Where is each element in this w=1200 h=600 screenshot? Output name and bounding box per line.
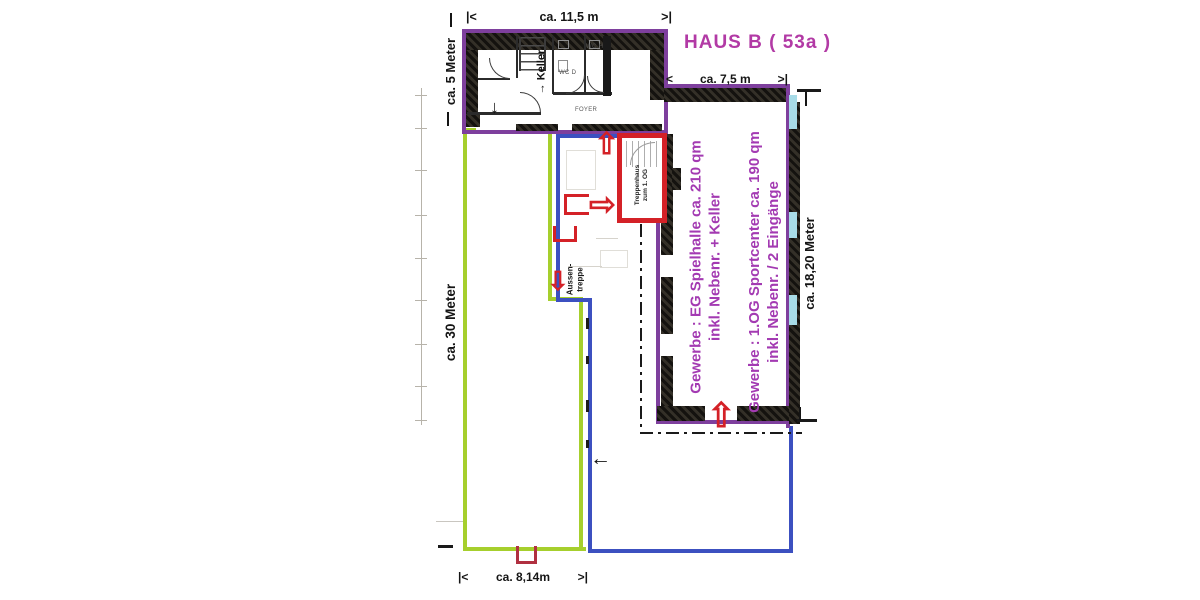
south-entrance-arrow-up-icon: ⇧ — [707, 399, 736, 433]
red-door-bracket — [564, 194, 589, 215]
blue-outline-left-lower — [588, 298, 592, 553]
wall-window-gap — [660, 255, 674, 277]
dimension-top-right-marker: >| — [661, 10, 672, 24]
entrance-arrow-up-icon: ⇧ — [594, 130, 619, 160]
gewerbe-eg-line2: inkl. Nebenr. + Keller — [706, 140, 725, 393]
plan-dash — [586, 440, 589, 448]
dimension-bottom-label: ca. 8,14m — [496, 570, 550, 584]
gewerbe-og-line2: inkl. Nebenr. / 2 Eingänge — [764, 131, 783, 413]
gewerbe-eg-annotation: Gewerbe : EG Spielhalle ca. 210 qm inkl.… — [683, 130, 729, 404]
dimension-tick — [799, 407, 801, 420]
survey-tick — [415, 344, 427, 345]
dimension-wing-right-marker: >| — [778, 72, 788, 86]
keller-label: Keller — [535, 50, 547, 81]
dimension-left-upper-label: ca. 5 Meter — [444, 37, 459, 104]
green-outline-mid-lower — [579, 297, 583, 551]
wall-wing-bottom-a — [657, 406, 705, 421]
wall-wing-top — [664, 88, 786, 102]
dimension-tick — [805, 92, 807, 106]
survey-line — [421, 88, 422, 425]
dimension-left-upper-box: ca. 5 Meter — [436, 28, 466, 114]
page-title: HAUS B ( 53a ) — [684, 32, 831, 54]
gewerbe-og-line1: Gewerbe : 1.OG Sportcenter ca. 190 qm — [745, 131, 764, 413]
wc-d-label: WC D — [559, 70, 576, 76]
treppenhaus-label-line1: Treppenhaus — [634, 165, 642, 205]
dimension-top: |< ca. 11,5 m >| — [466, 10, 672, 24]
keller-direction-arrow-icon: → — [535, 83, 547, 94]
dimension-wing: < ca. 7,5 m >| — [666, 72, 788, 86]
blue-outline-bottom — [588, 549, 793, 553]
survey-tick — [415, 128, 427, 129]
foyer-arrow-down-icon: ↓ — [490, 98, 499, 116]
aussentreppe-label-line2: treppe — [575, 263, 585, 295]
dimension-wing-label: ca. 7,5 m — [700, 72, 751, 86]
survey-tick — [415, 95, 427, 96]
wc-wall-thick — [603, 36, 611, 96]
wall-upper-bottom-b — [516, 124, 558, 131]
survey-mark — [436, 521, 464, 522]
floorplan-canvas: WC H WC D FOYER → Keller ↓ Treppenhaus z… — [0, 0, 1200, 600]
wall-upper-right — [650, 50, 664, 100]
plan-faint-detail — [596, 238, 618, 239]
aussentreppe-label-box: Aussen- treppe — [560, 248, 590, 310]
plan-faint-detail — [600, 250, 628, 268]
neighbor-wall-line-top — [797, 89, 821, 92]
red-door-bracket-bottom — [516, 546, 537, 564]
window-cyan — [789, 95, 797, 129]
wc-fixture — [558, 40, 569, 49]
survey-tick — [415, 420, 427, 421]
dimension-tick — [447, 112, 449, 126]
direction-arrow-left-icon: ← — [590, 448, 611, 469]
gewerbe-og-annotation: Gewerbe : 1.OG Sportcenter ca. 190 qm in… — [741, 126, 787, 418]
bottom-left-tick — [438, 545, 453, 548]
survey-tick — [415, 300, 427, 301]
red-door-bracket — [553, 226, 577, 242]
aussentreppe-label-line1: Aussen- — [566, 263, 576, 295]
dimension-bottom-left-marker: |< — [458, 570, 468, 584]
plan-dash — [586, 356, 589, 364]
survey-tick — [415, 258, 427, 259]
dimension-top-left-marker: |< — [466, 10, 477, 24]
dimension-bottom: |< ca. 8,14m >| — [458, 570, 588, 584]
wall-window-gap — [660, 334, 674, 356]
foyer-label: FOYER — [575, 107, 597, 113]
survey-tick — [415, 215, 427, 216]
dimension-tick — [450, 13, 452, 27]
treppenhaus-label-line2: zum 1. OG — [642, 165, 650, 205]
plan-dash — [586, 400, 589, 412]
plan-faint-detail — [566, 150, 596, 190]
dimension-right-label: ca. 18,20 Meter — [802, 217, 817, 310]
entrance-arrow-right-icon: ⇨ — [589, 188, 616, 220]
dimension-left-lower-label: ca. 30 Meter — [444, 283, 459, 360]
keller-label-box: → Keller — [527, 42, 555, 102]
dimension-left-lower-box: ca. 30 Meter — [436, 262, 466, 382]
treppenhaus-label-box: Treppenhaus zum 1. OG — [619, 150, 665, 220]
survey-tick — [415, 170, 427, 171]
blue-outline-right — [789, 426, 793, 553]
dimension-right-box: ca. 18,20 Meter — [794, 202, 824, 324]
wc-h-label: WC H — [586, 44, 603, 50]
wall-pillar — [672, 168, 681, 190]
gewerbe-eg-line1: Gewerbe : EG Spielhalle ca. 210 qm — [687, 140, 706, 393]
wall-upper-bottom-a — [466, 114, 480, 127]
dimension-wing-left-marker: < — [666, 72, 673, 86]
dimension-top-label: ca. 11,5 m — [539, 10, 598, 24]
section-line-vertical — [640, 224, 642, 434]
interior-wall — [516, 36, 518, 78]
plan-dash — [586, 318, 589, 329]
dimension-bottom-right-marker: >| — [578, 570, 588, 584]
interior-wall — [467, 112, 541, 115]
survey-tick — [415, 386, 427, 387]
